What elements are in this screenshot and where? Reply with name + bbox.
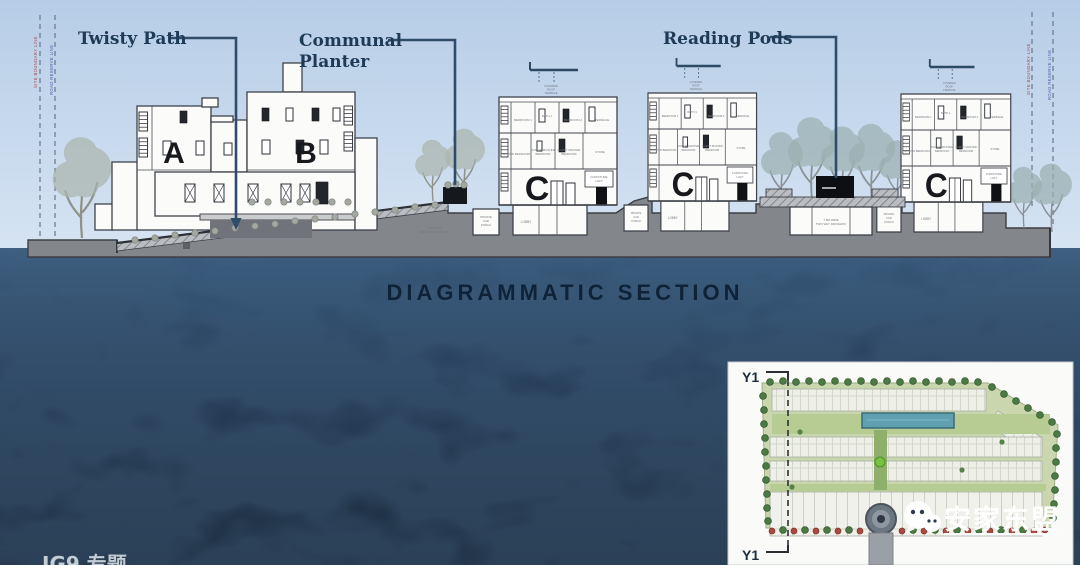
communal-planter-annotation: Communal — [299, 31, 403, 51]
bottom-left-watermark: JG9 专题 — [40, 552, 128, 565]
reading-pods-annotation: Reading Pods — [663, 29, 793, 49]
driveway-label: TWO WAY DRIVEWAY — [419, 230, 450, 234]
building-b-label: B — [295, 137, 317, 170]
boundary-label-left-blue: ROAD RESERVE LINE — [49, 45, 54, 95]
wechat-watermark-text: 安家东盟 — [944, 504, 1060, 536]
twisty-path-annotation: Twisty Path — [78, 29, 187, 49]
building-ab-connector — [211, 116, 247, 172]
section-drawing: COVERED ROOF TERRACE LOBBY PRIVATE CAR P… — [0, 0, 1080, 565]
communal-planter-annotation: Planter — [299, 52, 370, 72]
section-marker-y1-bottom: Y1 — [742, 547, 759, 563]
boundary-label-right-red: SITE BOUNDARY LINE — [1026, 43, 1031, 95]
diagram-canvas: COVERED ROOF TERRACE LOBBY PRIVATE CAR P… — [0, 0, 1080, 565]
building-a-label: A — [163, 137, 185, 170]
boundary-label-right-blue: ROAD RESERVE LINE — [1047, 50, 1052, 100]
driveway-label: TWO WAY DRIVEWAY — [816, 222, 847, 226]
boundary-label-left-red: SITE BOUNDARY LINE — [33, 36, 38, 88]
page-title: DIAGRAMMATIC SECTION — [386, 280, 743, 305]
section-marker-y1-top: Y1 — [742, 369, 759, 385]
